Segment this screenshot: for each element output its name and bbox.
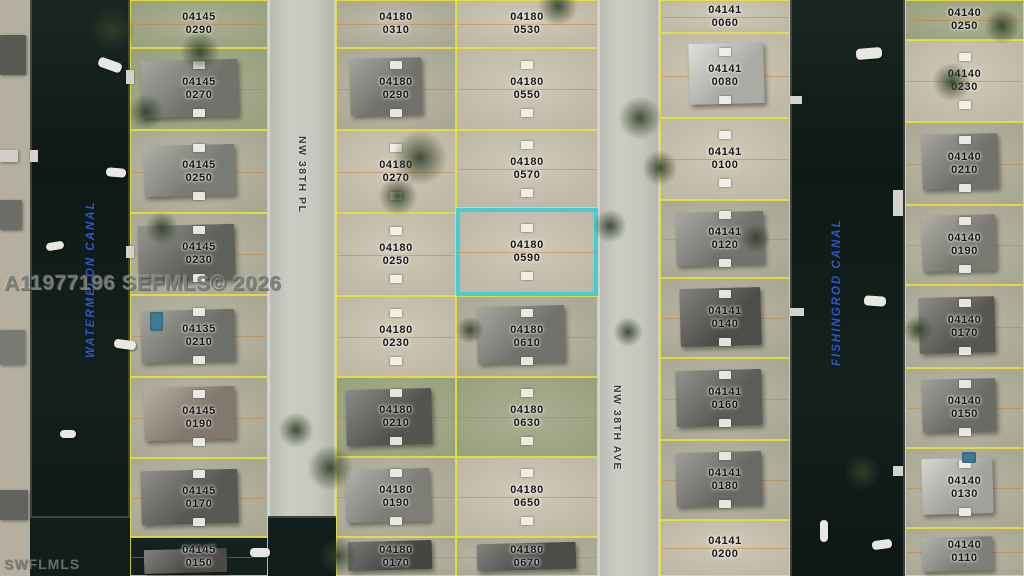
lot-marker — [719, 500, 731, 508]
parcel-lot: 0170 — [130, 498, 268, 511]
parcel-04180-0190: 041800190 — [336, 457, 456, 537]
parcel-book: 04180 — [336, 242, 456, 255]
parcel-book: 04180 — [336, 404, 456, 417]
parcel-04180-0630: 041800630 — [456, 377, 598, 457]
dock — [126, 246, 134, 258]
lot-marker — [521, 389, 533, 397]
tree — [903, 315, 933, 345]
dock — [126, 70, 134, 84]
parcel-lot: 0190 — [130, 418, 268, 431]
parcel-lot: 0180 — [660, 480, 790, 493]
parcel-04145-0190: 041450190 — [130, 377, 268, 458]
lot-marker — [959, 347, 971, 355]
parcel-lot: 0190 — [905, 245, 1024, 258]
lot-marker — [390, 227, 402, 235]
parcel-book: 04141 — [660, 63, 790, 76]
tree — [932, 62, 972, 102]
lot-marker — [959, 53, 971, 61]
tree — [593, 209, 627, 243]
parcel-label: 041400190 — [905, 232, 1024, 258]
parcel-book: 04180 — [456, 404, 598, 417]
parcel-book: 04140 — [905, 151, 1024, 164]
lot-marker — [959, 101, 971, 109]
parcel-04180-0230: 041800230 — [336, 296, 456, 377]
parcel-label: 041450170 — [130, 485, 268, 511]
parcel-label: 041410060 — [660, 4, 790, 30]
parcel-04180-0570: 041800570 — [456, 130, 598, 208]
tree — [613, 317, 643, 347]
parcel-lot: 0060 — [660, 17, 790, 30]
tree — [456, 316, 484, 344]
lot-marker — [719, 452, 731, 460]
tree — [843, 453, 881, 491]
tree — [307, 445, 353, 491]
edge-building — [0, 150, 18, 162]
pool — [962, 452, 976, 463]
lot-marker — [521, 189, 533, 197]
parcel-lot: 0210 — [905, 164, 1024, 177]
parcel-book: 04145 — [130, 405, 268, 418]
parcel-04140-0190: 041400190 — [905, 205, 1024, 285]
tree — [741, 223, 771, 253]
parcel-lot: 0190 — [336, 497, 456, 510]
lot-marker — [390, 275, 402, 283]
fishingrod-canal — [790, 0, 905, 576]
lot-marker — [719, 338, 731, 346]
parcel-label: 041800250 — [336, 242, 456, 268]
lot-marker — [719, 371, 731, 379]
parcel-lot: 0550 — [456, 89, 598, 102]
parcel-book: 04180 — [336, 11, 456, 24]
parcel-book: 04141 — [660, 146, 790, 159]
lot-marker — [521, 224, 533, 232]
parcel-04145-0150: 041450150 — [130, 537, 268, 576]
lot-marker — [390, 469, 402, 477]
lot-marker — [193, 438, 205, 446]
parcel-book: 04140 — [905, 475, 1024, 488]
dock — [790, 308, 804, 316]
lot-marker — [521, 309, 533, 317]
lot-marker — [193, 390, 205, 398]
edge-building — [0, 200, 22, 230]
boat — [820, 520, 828, 542]
parcel-lot: 0150 — [905, 408, 1024, 421]
parcel-label: 041410180 — [660, 467, 790, 493]
fishingrod-canal-label: FISHINGROD CANAL — [830, 226, 844, 366]
lot-marker — [521, 109, 533, 117]
lot-marker — [193, 144, 205, 152]
nw-38th-pl-label: NW 38TH PL — [295, 136, 308, 208]
parcel-book: 04145 — [130, 159, 268, 172]
parcel-04180-0650: 041800650 — [456, 457, 598, 537]
parcel-label: 041410160 — [660, 386, 790, 412]
parcel-book: 04141 — [660, 4, 790, 17]
mls-aerial-parcel-map: A11977196 SEFMLS© 2026 SWFLMLS WATERMELO… — [0, 0, 1024, 576]
parcel-book: 04141 — [660, 535, 790, 548]
parcel-lot: 0250 — [130, 172, 268, 185]
pool — [150, 312, 163, 331]
parcel-04135-0210: 041350210 — [130, 295, 268, 377]
lot-marker — [521, 517, 533, 525]
lot-marker — [193, 518, 205, 526]
parcel-04180-0210: 041800210 — [336, 377, 456, 457]
parcel-label: 041800210 — [336, 404, 456, 430]
parcel-04180-0550: 041800550 — [456, 48, 598, 130]
parcel-label: 041800530 — [456, 11, 598, 37]
lot-marker — [193, 109, 205, 117]
parcel-label: 041800570 — [456, 156, 598, 182]
lot-marker — [193, 226, 205, 234]
parcel-04141-0180: 041410180 — [660, 440, 790, 520]
parcel-book: 04145 — [130, 76, 268, 89]
parcel-book: 04145 — [130, 485, 268, 498]
parcel-label: 041410200 — [660, 535, 790, 561]
lot-marker — [719, 211, 731, 219]
lot-marker — [719, 290, 731, 298]
lot-marker — [390, 61, 402, 69]
parcel-04145-0250: 041450250 — [130, 130, 268, 213]
watermark-swflmls: SWFLMLS — [4, 556, 80, 572]
lot-marker — [959, 508, 971, 516]
boat — [856, 47, 883, 60]
lot-marker — [719, 131, 731, 139]
dock — [790, 96, 802, 104]
parcel-book: 04140 — [905, 232, 1024, 245]
nw-38th-ave-label: NW 38TH AVE — [610, 384, 623, 472]
parcel-book: 04180 — [456, 484, 598, 497]
parcel-book: 04145 — [130, 544, 268, 557]
parcel-lot: 0230 — [130, 254, 268, 267]
parcel-label: 041450190 — [130, 405, 268, 431]
lot-marker — [390, 109, 402, 117]
parcel-lot: 0110 — [905, 552, 1024, 565]
parcel-label: 041450230 — [130, 241, 268, 267]
parcel-book: 04141 — [660, 386, 790, 399]
lot-marker — [719, 96, 731, 104]
lot-marker — [521, 272, 533, 280]
parcel-book: 04140 — [905, 539, 1024, 552]
parcel-book: 04140 — [905, 395, 1024, 408]
parcel-04141-0160: 041410160 — [660, 358, 790, 440]
parcel-label: 041800650 — [456, 484, 598, 510]
parcel-04140-0210: 041400210 — [905, 122, 1024, 205]
parcel-04141-0140: 041410140 — [660, 278, 790, 358]
parcel-book: 04180 — [456, 239, 598, 252]
dock — [893, 466, 903, 476]
lot-marker — [959, 299, 971, 307]
lot-marker — [959, 380, 971, 388]
parcel-label: 041450250 — [130, 159, 268, 185]
lot-marker — [193, 356, 205, 364]
parcel-lot: 0530 — [456, 24, 598, 37]
tree — [278, 412, 314, 448]
parcel-label: 041800290 — [336, 76, 456, 102]
parcel-label: 041800310 — [336, 11, 456, 37]
parcel-lot: 0140 — [660, 318, 790, 331]
lot-marker — [521, 61, 533, 69]
parcel-book: 04180 — [336, 76, 456, 89]
parcel-04180-0290: 041800290 — [336, 48, 456, 130]
tree — [145, 211, 179, 245]
tree — [128, 94, 164, 130]
parcel-label: 041800670 — [456, 544, 598, 570]
parcel-label: 041800230 — [336, 324, 456, 350]
lot-marker — [390, 517, 402, 525]
dock — [30, 150, 38, 162]
tree — [378, 176, 418, 216]
parcel-book: 04180 — [336, 484, 456, 497]
lot-marker — [959, 184, 971, 192]
parcel-book: 04145 — [130, 241, 268, 254]
parcel-04180-0590: 041800590 — [456, 208, 598, 296]
parcel-lot: 0210 — [130, 336, 268, 349]
lot-marker — [390, 357, 402, 365]
lot-marker — [390, 389, 402, 397]
parcel-label: 041410100 — [660, 146, 790, 172]
lot-marker — [193, 470, 205, 478]
tree — [984, 8, 1020, 44]
parcel-lot: 0080 — [660, 76, 790, 89]
parcel-label: 041400110 — [905, 539, 1024, 565]
tree — [642, 150, 678, 186]
lot-marker — [390, 437, 402, 445]
edge-building — [0, 330, 25, 365]
parcel-label: 041800550 — [456, 76, 598, 102]
nw-38th-ave — [598, 0, 660, 576]
parcel-lot: 0590 — [456, 252, 598, 265]
parcel-lot: 0570 — [456, 169, 598, 182]
lot-marker — [959, 265, 971, 273]
lot-marker — [719, 179, 731, 187]
parcel-lot: 0200 — [660, 548, 790, 561]
lot-marker — [390, 309, 402, 317]
parcel-04180-0250: 041800250 — [336, 213, 456, 296]
tree — [318, 536, 358, 576]
parcel-04141-0200: 041410200 — [660, 520, 790, 576]
parcel-04140-0110: 041400110 — [905, 528, 1024, 576]
parcel-label: 041410140 — [660, 305, 790, 331]
parcel-lot: 0130 — [905, 488, 1024, 501]
parcel-lot: 0630 — [456, 417, 598, 430]
parcel-book: 04180 — [456, 544, 598, 557]
parcel-lot: 0290 — [336, 89, 456, 102]
parcel-book: 04141 — [660, 305, 790, 318]
tree — [89, 7, 135, 53]
lot-marker — [521, 357, 533, 365]
lot-marker — [959, 136, 971, 144]
boat — [60, 430, 76, 438]
parcel-lot: 0100 — [660, 159, 790, 172]
parcel-label: 041410080 — [660, 63, 790, 89]
parcel-lot: 0310 — [336, 24, 456, 37]
parcel-book: 04180 — [456, 76, 598, 89]
parcel-04180-0670: 041800670 — [456, 537, 598, 576]
parcel-04141-0080: 041410080 — [660, 33, 790, 118]
parcel-lot: 0230 — [336, 337, 456, 350]
parcel-label: 041800590 — [456, 239, 598, 265]
parcel-label: 041400150 — [905, 395, 1024, 421]
parcel-book: 04180 — [456, 156, 598, 169]
parcel-book: 04141 — [660, 467, 790, 480]
boat — [106, 167, 127, 178]
lot-marker — [719, 419, 731, 427]
parcel-label: 041400210 — [905, 151, 1024, 177]
boat — [864, 295, 887, 307]
parcel-lot: 0160 — [660, 399, 790, 412]
parcel-04180-0310: 041800310 — [336, 0, 456, 48]
parcel-label: 041450150 — [130, 544, 268, 570]
parcel-book: 04145 — [130, 11, 268, 24]
lot-marker — [521, 141, 533, 149]
edge-building — [0, 490, 28, 520]
parcel-lot: 0250 — [336, 255, 456, 268]
parcel-book: 04180 — [336, 324, 456, 337]
tree — [618, 96, 662, 140]
parcel-04140-0150: 041400150 — [905, 368, 1024, 448]
parcel-label: 041800630 — [456, 404, 598, 430]
parcel-lot: 0670 — [456, 557, 598, 570]
parcel-04141-0060: 041410060 — [660, 0, 790, 33]
lot-marker — [959, 217, 971, 225]
parcel-04145-0170: 041450170 — [130, 458, 268, 537]
watermark-mls-id: A11977196 SEFMLS© 2026 — [4, 272, 281, 296]
lot-marker — [193, 192, 205, 200]
parcel-04141-0100: 041410100 — [660, 118, 790, 200]
boat — [250, 548, 270, 557]
lot-marker — [719, 48, 731, 56]
lot-marker — [521, 469, 533, 477]
dock — [893, 190, 903, 216]
lot-marker — [521, 437, 533, 445]
parcel-lot: 0650 — [456, 497, 598, 510]
parcel-lot: 0210 — [336, 417, 456, 430]
parcel-label: 041400130 — [905, 475, 1024, 501]
lot-marker — [193, 308, 205, 316]
tree — [180, 32, 220, 72]
parcel-lot: 0150 — [130, 557, 268, 570]
parcel-label: 041800190 — [336, 484, 456, 510]
edge-building — [0, 35, 26, 75]
lot-marker — [719, 259, 731, 267]
lot-marker — [959, 428, 971, 436]
